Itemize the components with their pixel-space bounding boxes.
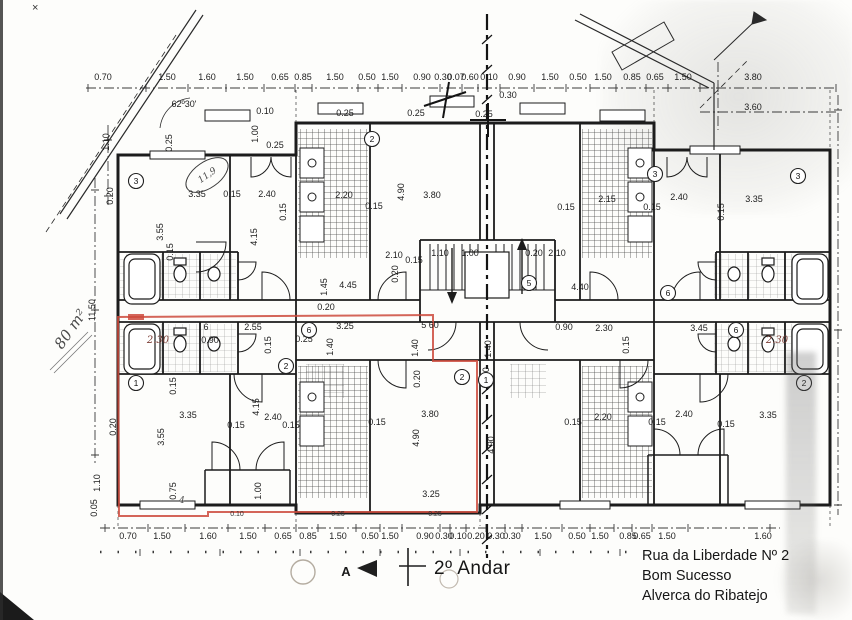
dim-label: 0.20: [412, 370, 422, 388]
stair-down-arrow-icon: [447, 292, 457, 304]
dim-label: 0.10: [449, 531, 467, 541]
room-number-label: 2: [802, 378, 807, 388]
address-block: Rua da Liberdade Nº 2 Bom Sucesso Alverc…: [642, 546, 789, 606]
dim-label: 0.65: [271, 72, 289, 82]
dim-label: 0.30: [499, 90, 517, 100]
dim-label: 1.50: [326, 72, 344, 82]
dim-label: 0.15: [621, 336, 631, 354]
dim-label: 4.90: [411, 429, 421, 447]
floor-plan-scan: 0.70 1.50 1.60 1.50 0.65 0.85 1.50 0.50 …: [0, 0, 852, 620]
crop-mark-icon: [399, 548, 426, 586]
dim-label: 0.70: [119, 531, 137, 541]
walls: [118, 123, 830, 513]
dim-label: 0.60: [461, 72, 479, 82]
dim-label: 1.50: [153, 531, 171, 541]
dim-label: 1.50: [158, 72, 176, 82]
dim-label: 3.35: [188, 189, 206, 199]
room-number: 3: [791, 169, 806, 184]
dim-label: 0.50: [358, 72, 376, 82]
dim-label: 0.65: [633, 531, 651, 541]
dim-label: 2.40: [264, 412, 282, 422]
dim-label: 0.15: [648, 417, 666, 427]
dim-label: 4.90: [396, 183, 406, 201]
dim-label: 4.90: [486, 436, 496, 454]
room-number-label: 2: [460, 372, 465, 382]
handwritten-note: 4: [178, 496, 185, 506]
section-label: A: [341, 564, 351, 579]
dim-label: 0.50: [568, 531, 586, 541]
dim-label: 6: [203, 322, 208, 332]
dim-label: 1.50: [591, 531, 609, 541]
hatched-floor-areas: [120, 129, 828, 498]
dim-label: 0.20: [390, 265, 400, 283]
dim-label: 0.65: [646, 72, 664, 82]
dim-label: 1.50: [534, 531, 552, 541]
room-number: 2: [279, 359, 294, 374]
dim-label: 0.25: [428, 511, 442, 518]
dim-label: 0.20: [525, 248, 543, 258]
dim-label: 0.30: [503, 531, 521, 541]
floor-title: 2º Andar: [434, 558, 510, 580]
dim-label: 2.20: [594, 412, 612, 422]
dim-label: 1.40: [325, 338, 335, 356]
dim-label: 2.10: [385, 250, 403, 260]
room-number: 1: [129, 376, 144, 391]
dim-label: 4.40: [571, 282, 589, 292]
room-number: 5: [522, 276, 537, 291]
dimension-chain-bottom-labels: 0.70 1.50 1.60 1.50 0.65 0.85 1.50 0.50 …: [119, 531, 772, 541]
dim-label: 1.40: [483, 340, 493, 358]
dim-label: 1.50: [381, 531, 399, 541]
site-boundary-diagonals: [46, 10, 766, 232]
dim-label: 0.15: [165, 243, 175, 261]
dim-label: 4.15: [251, 398, 261, 416]
dim-label: 1.40: [410, 339, 420, 357]
area-note-80m2: 80 m²: [50, 306, 92, 373]
room-number-label: 6: [734, 325, 739, 335]
dim-label: 0.20: [108, 418, 118, 436]
dim-label: 0.15: [227, 420, 245, 430]
room-number-label: 3: [796, 171, 801, 181]
dim-label: 0.25: [475, 109, 493, 119]
dim-label: 5 60: [421, 320, 439, 330]
room-number-label: 2: [284, 361, 289, 371]
dim-label: 0.15: [168, 377, 178, 395]
dim-label: 3.80: [421, 409, 439, 419]
dim-label: 3.35: [759, 410, 777, 420]
room-number-label: 5: [527, 278, 532, 288]
dim-label: 0.85: [299, 531, 317, 541]
dim-label: 3.55: [155, 223, 165, 241]
scan-pen-mark: ×: [32, 2, 38, 14]
dim-label: 0.20: [105, 187, 115, 205]
dim-label: 0.15: [368, 417, 386, 427]
dim-label: 1.00: [250, 125, 260, 143]
dim-label: 2.55: [244, 322, 262, 332]
dim-label: 2.40: [675, 409, 693, 419]
dim-label: 1.50: [329, 531, 347, 541]
dim-label: 1.60: [754, 531, 772, 541]
dim-label: 1.00: [461, 248, 479, 258]
dim-label: 2.10: [548, 248, 566, 258]
dim-label: 0.30: [487, 531, 505, 541]
dim-label: 3.45: [690, 323, 708, 333]
room-number: 6: [661, 286, 676, 301]
dim-label: 1.60: [198, 72, 216, 82]
dim-label: 0.25: [407, 108, 425, 118]
dim-label: 0.15: [365, 201, 383, 211]
window-boxes: [140, 96, 800, 509]
dim-label: 0.15: [557, 202, 575, 212]
dimension-chain-top-labels: 0.70 1.50 1.60 1.50 0.65 0.85 1.50 0.50 …: [94, 72, 762, 82]
room-number-label: 3: [134, 176, 139, 186]
dim-label: 0.90: [201, 335, 219, 345]
dim-label: 0.85: [294, 72, 312, 82]
dim-label: 3.35: [179, 410, 197, 420]
address-line-1: Rua da Liberdade Nº 2: [642, 546, 789, 566]
dim-label: 0.25: [266, 140, 284, 150]
dim-label: 0.20: [467, 531, 485, 541]
dim-label: 2.20: [335, 190, 353, 200]
room-number: 2: [455, 370, 470, 385]
dim-label: 1.10: [431, 248, 449, 258]
dim-label: 2.30: [595, 323, 613, 333]
dim-label: 4.15: [249, 228, 259, 246]
room-number: 6: [302, 323, 317, 338]
dim-label: 0.15: [564, 417, 582, 427]
dim-label: 0.90: [413, 72, 431, 82]
dim-label: 0.15: [717, 419, 735, 429]
room-number: 3: [648, 167, 663, 182]
room-number-label: 3: [653, 169, 658, 179]
room-number: 2: [797, 376, 812, 391]
dim-label: 0.70: [94, 72, 112, 82]
dim-label: 0.50: [569, 72, 587, 82]
dim-label: 1.00: [253, 482, 263, 500]
handwritten-dim: 2.30: [765, 335, 789, 346]
handwritten-area-note: 11,9: [196, 166, 218, 186]
address-line-2: Bom Sucesso: [642, 566, 789, 586]
dim-label: 1.50: [239, 531, 257, 541]
dim-label: 0.20: [317, 302, 335, 312]
entrance-marker: [128, 314, 144, 320]
dim-label: 0.25: [331, 511, 345, 518]
dim-label: 4.45: [339, 280, 357, 290]
dim-label: 1.10: [92, 474, 102, 492]
dim-label: 0.25: [164, 134, 174, 152]
dim-label: 1.50: [658, 531, 676, 541]
dim-label: 3.60: [744, 102, 762, 112]
room-number: 3: [129, 174, 144, 189]
dim-label: 0.15: [278, 203, 288, 221]
dim-label: 0.85: [623, 72, 641, 82]
handwritten-area-label: 80 m²: [51, 306, 91, 352]
room-number: 2: [365, 132, 380, 147]
room-number-label: 1: [484, 375, 489, 385]
room-number: 1: [479, 373, 494, 388]
handwritten-dim: 2.30: [146, 335, 170, 346]
north-arrow-icon: [752, 12, 766, 24]
dim-label: 0.90: [508, 72, 526, 82]
dim-label: 0.15: [643, 202, 661, 212]
dim-label: 1.50: [674, 72, 692, 82]
dim-label: 1.50: [541, 72, 559, 82]
dim-label: 1.45: [319, 278, 329, 296]
room-number-label: 6: [666, 288, 671, 298]
dim-label: 1.10: [101, 133, 111, 151]
dim-label: 3.25: [336, 321, 354, 331]
dim-label: 0.10: [480, 72, 498, 82]
floor-plan-drawing: 0.70 1.50 1.60 1.50 0.65 0.85 1.50 0.50 …: [0, 0, 852, 620]
dim-label: 3.80: [744, 72, 762, 82]
dim-label: 1.50: [381, 72, 399, 82]
stamp-mark: [291, 560, 315, 584]
dim-label: 0.90: [416, 531, 434, 541]
section-marker-row: A: [100, 548, 640, 588]
dim-label: 1.60: [199, 531, 217, 541]
dim-label: 0.15: [223, 189, 241, 199]
dim-label: 0.90: [555, 322, 573, 332]
dim-label: 0.15: [716, 203, 726, 221]
address-line-3: Alverca do Ribatejo: [642, 586, 789, 606]
angle-label: 62º30': [171, 99, 196, 109]
dim-label: 2.40: [258, 189, 276, 199]
dim-label: 0.05: [89, 499, 99, 517]
room-number-label: 2: [370, 134, 375, 144]
dim-label: 0.25: [336, 108, 354, 118]
dim-label: 0.50: [361, 531, 379, 541]
dim-label: 3.35: [745, 194, 763, 204]
section-arrow-icon: [357, 560, 377, 577]
dim-label: 0.10: [256, 106, 274, 116]
dim-label: 0.15: [405, 255, 423, 265]
dim-label: 0.15: [263, 336, 273, 354]
room-number: 6: [729, 323, 744, 338]
dim-label: 3.55: [156, 428, 166, 446]
dim-label: 1.50: [594, 72, 612, 82]
dim-label: 3.25: [422, 489, 440, 499]
dim-label: 2.40: [670, 192, 688, 202]
dim-label: 0.75: [168, 482, 178, 500]
dim-label: 1.50: [236, 72, 254, 82]
dim-label: 3.80: [423, 190, 441, 200]
dim-label: 0.10: [230, 511, 244, 518]
dim-label: 0.65: [274, 531, 292, 541]
room-number-label: 6: [307, 325, 312, 335]
dim-label: 0.15: [282, 420, 300, 430]
dim-label: 2.15: [598, 194, 616, 204]
room-number-label: 1: [134, 378, 139, 388]
